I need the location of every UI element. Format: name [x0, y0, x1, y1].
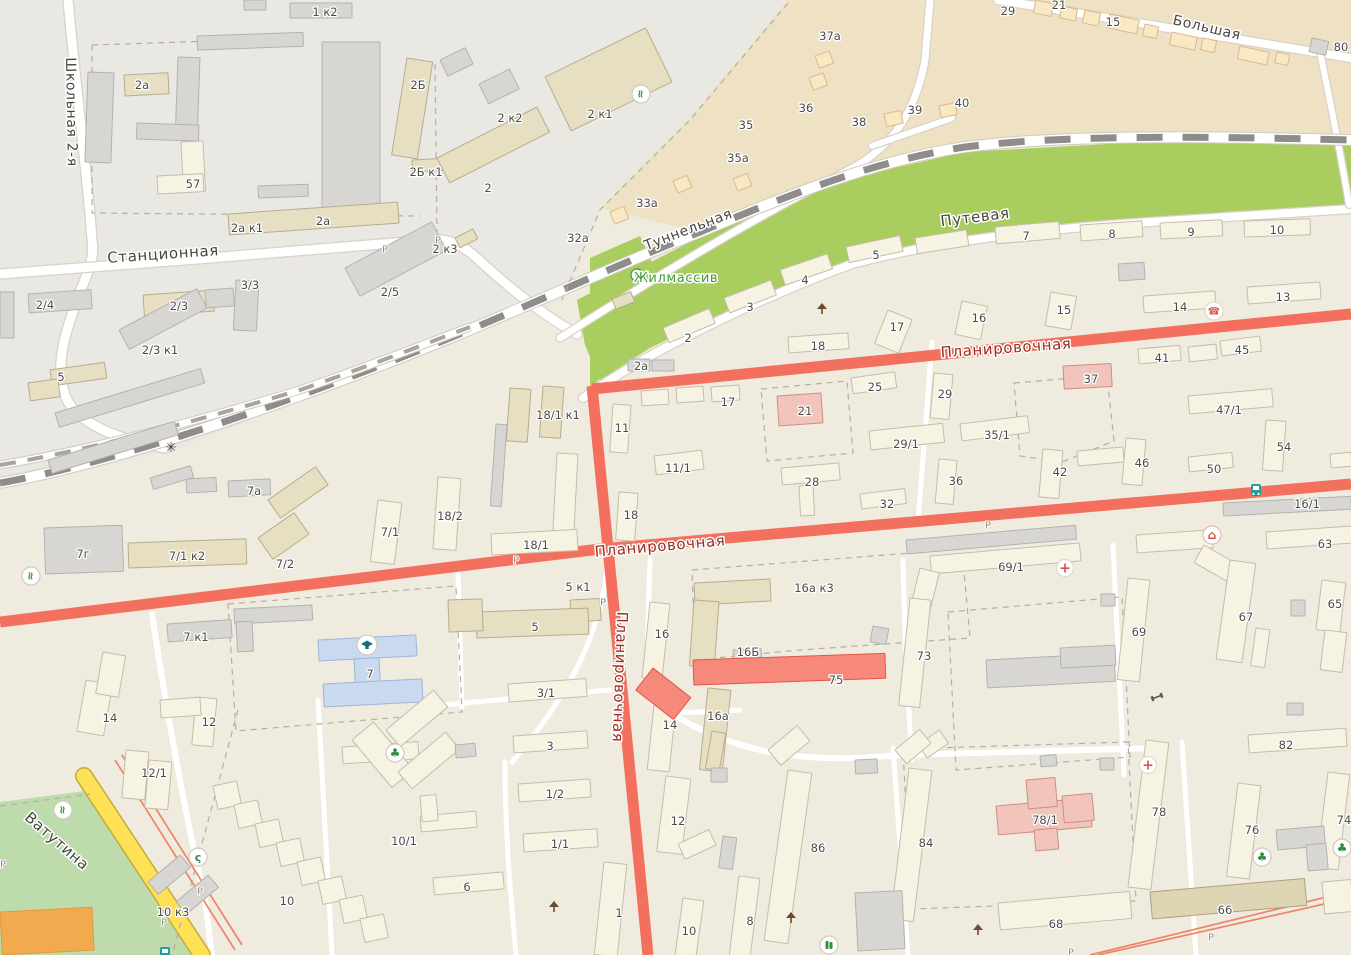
building[interactable]: [799, 485, 815, 516]
house-number-label: 2а: [135, 78, 149, 92]
house-number-label: 45: [1235, 343, 1250, 357]
house-number-label: 29: [1001, 4, 1016, 18]
house-number-label: 7/1 к2: [169, 549, 205, 563]
house-number-label: 1/2: [546, 787, 565, 801]
building[interactable]: [1330, 452, 1351, 468]
house-number-label: 73: [917, 649, 932, 663]
building[interactable]: [1060, 645, 1116, 668]
house-number-label: 2а: [316, 214, 330, 228]
parking-label: Р: [513, 556, 519, 567]
house-number-label: 12/1: [141, 766, 167, 780]
home-icon[interactable]: ⌂: [1203, 526, 1221, 544]
svg-text:+: +: [1142, 758, 1154, 774]
house-number-label: 2/3: [170, 299, 189, 313]
house-number-label: 35: [739, 118, 754, 132]
building[interactable]: [1287, 703, 1303, 715]
building[interactable]: [1034, 828, 1059, 851]
svg-text:+: +: [1059, 561, 1071, 577]
building[interactable]: [1118, 262, 1145, 281]
house-number-label: 17: [890, 320, 905, 334]
bus-icon[interactable]: [160, 947, 170, 955]
house-number-label: 3/3: [241, 278, 260, 292]
house-number-label: 69: [1132, 625, 1147, 639]
house-number-label: 29: [938, 387, 953, 401]
building[interactable]: [205, 288, 234, 308]
house-number-label: 7: [366, 667, 373, 681]
house-number-label: 10/1: [391, 834, 417, 848]
building[interactable]: [186, 477, 217, 493]
house-number-label: 7/1: [381, 525, 400, 539]
house-number-label: 37а: [819, 29, 841, 43]
house-number-label: 21: [798, 404, 813, 418]
house-number-label: 11/1: [665, 461, 691, 475]
railcross-icon[interactable]: ✳: [165, 440, 177, 456]
house-number-label: 67: [1239, 610, 1254, 624]
building[interactable]: [28, 379, 60, 401]
house-number-label: 75: [829, 673, 844, 687]
svg-text:ς: ς: [195, 851, 202, 864]
house-number-label: 18/2: [437, 509, 463, 523]
bus-icon[interactable]: [1251, 484, 1261, 496]
house-number-label: 9: [1187, 225, 1194, 239]
svg-text:♣: ♣: [1337, 841, 1348, 855]
house-number-label: 11: [615, 421, 630, 435]
house-number-label: 18/1: [523, 538, 549, 552]
house-number-label: 2: [484, 181, 491, 195]
building[interactable]: [1062, 793, 1094, 823]
house-number-label: 2а: [634, 359, 648, 373]
building[interactable]: [360, 914, 388, 942]
house-number-label: 7 к1: [183, 630, 208, 644]
house-number-label: 17: [721, 395, 736, 409]
house-number-label: 16а: [707, 709, 729, 723]
svg-text:♣: ♣: [1257, 850, 1268, 864]
house-number-label: 3: [746, 300, 753, 314]
house-number-label: 86: [811, 841, 826, 855]
building[interactable]: [1275, 52, 1290, 65]
parking-label: Р: [382, 245, 388, 256]
building[interactable]: [1143, 24, 1159, 39]
svg-text:≈: ≈: [24, 571, 37, 580]
parking-label: Р: [985, 521, 991, 532]
house-number-label: 5: [872, 248, 879, 262]
svg-text:≈: ≈: [56, 805, 69, 814]
house-number-label: 2 к2: [497, 111, 522, 125]
house-number-label: 36: [799, 101, 814, 115]
house-number-label: 66: [1218, 903, 1233, 917]
house-number-label: 3/1: [537, 686, 556, 700]
house-number-label: 10: [280, 894, 295, 908]
bottle-icon[interactable]: [820, 936, 838, 954]
building[interactable]: [855, 891, 905, 951]
house-number-label: 7а: [247, 484, 261, 498]
house-number-label: 39: [908, 103, 923, 117]
house-number-label: 84: [919, 836, 934, 850]
building[interactable]: [652, 360, 674, 371]
house-number-label: 2а к1: [231, 221, 263, 235]
house-number-label: 14: [663, 718, 678, 732]
house-number-label: 5: [531, 620, 538, 634]
house-number-label: 4: [801, 273, 808, 287]
house-number-label: 41: [1155, 351, 1170, 365]
house-number-label: 16: [972, 311, 987, 325]
runner-icon[interactable]: ς: [189, 848, 207, 866]
spring-icon[interactable]: ≈: [22, 567, 40, 585]
building[interactable]: [160, 697, 201, 718]
house-number-label: 35а: [727, 151, 749, 165]
parking-label: Р: [1208, 933, 1214, 944]
house-number-label: 68: [1049, 917, 1064, 931]
building[interactable]: [0, 292, 14, 338]
house-number-label: 74: [1337, 813, 1351, 827]
house-number-label: 2/4: [36, 298, 55, 312]
house-number-label: 15: [1106, 15, 1121, 29]
house-number-label: 38: [852, 115, 867, 129]
building[interactable]: [0, 907, 94, 955]
house-number-label: 3: [546, 739, 553, 753]
street-name-label: Школьная 2-я: [62, 57, 80, 167]
building[interactable]: [323, 679, 423, 707]
building[interactable]: [322, 42, 380, 210]
building[interactable]: [197, 32, 303, 50]
house-number-label: 13: [1276, 290, 1291, 304]
house-number-label: 16а к3: [794, 581, 834, 595]
house-number-label: 16: [655, 627, 670, 641]
building[interactable]: [1309, 38, 1329, 55]
svg-text:✳: ✳: [165, 440, 177, 456]
building[interactable]: [689, 600, 719, 668]
house-number-label: 8: [746, 914, 753, 928]
svg-text:☎: ☎: [1208, 307, 1220, 318]
house-number-label: 18: [624, 508, 639, 522]
building[interactable]: [244, 0, 266, 10]
house-number-label: 18: [811, 339, 826, 353]
house-number-label: 54: [1277, 440, 1292, 454]
house-number-label: 69/1: [998, 560, 1024, 574]
house-number-label: 18/1 к1: [536, 408, 580, 422]
house-number-label: 37: [1084, 372, 1099, 386]
house-number-label: 14: [1173, 300, 1188, 314]
svg-text:⌂: ⌂: [1208, 528, 1217, 542]
building[interactable]: [1188, 344, 1217, 362]
house-number-label: 8: [1108, 227, 1115, 241]
cross-icon[interactable]: +: [1140, 757, 1157, 774]
spring-icon[interactable]: ≈: [54, 801, 72, 819]
house-number-label: 40: [955, 96, 970, 110]
svg-text:♣: ♣: [390, 746, 401, 760]
house-number-label: 6: [463, 880, 470, 894]
tree-icon[interactable]: ♣: [1333, 839, 1351, 857]
house-number-label: 50: [1207, 462, 1222, 476]
building[interactable]: [1040, 755, 1057, 767]
svg-text:≈: ≈: [634, 89, 647, 98]
building[interactable]: [258, 184, 308, 198]
house-number-label: 35/1: [984, 428, 1010, 442]
building[interactable]: [884, 110, 903, 126]
building[interactable]: [1320, 630, 1347, 672]
house-number-label: 47/1: [1216, 403, 1242, 417]
house-number-label: 32а: [567, 231, 589, 245]
building[interactable]: [711, 768, 727, 782]
house-number-label: 25: [868, 380, 883, 394]
building[interactable]: [1291, 600, 1305, 616]
building[interactable]: [1100, 758, 1114, 770]
parking-label: Р: [161, 918, 167, 929]
building[interactable]: [1322, 879, 1351, 913]
house-number-label: 80: [1334, 40, 1349, 54]
tree-icon[interactable]: ♣: [1253, 848, 1271, 866]
house-number-label: 78: [1152, 805, 1167, 819]
house-number-label: 10: [682, 924, 697, 938]
gradcap-icon[interactable]: [357, 635, 377, 655]
parking-label: Р: [197, 887, 203, 898]
house-number-label: 36: [949, 474, 964, 488]
tree-icon[interactable]: ♣: [386, 744, 404, 762]
building[interactable]: [1101, 594, 1115, 606]
house-number-label: 63: [1318, 537, 1333, 551]
house-number-label: 32: [880, 497, 895, 511]
house-number-label: 2/3 к1: [142, 343, 178, 357]
house-number-label: 5 к1: [565, 580, 590, 594]
building[interactable]: [420, 795, 438, 822]
house-number-label: 1/1: [551, 837, 570, 851]
house-number-label: 5: [57, 370, 64, 384]
parking-label: Р: [435, 236, 441, 247]
building[interactable]: [676, 386, 704, 403]
house-number-label: 33а: [636, 196, 658, 210]
house-number-label: 12: [671, 814, 686, 828]
house-number-label: 7/2: [276, 557, 295, 571]
building[interactable]: [1082, 10, 1100, 26]
parking-label: Р: [0, 860, 6, 871]
house-number-label: 2: [684, 331, 691, 345]
house-number-label: 2 к1: [587, 107, 612, 121]
house-number-label: 65: [1328, 597, 1343, 611]
building[interactable]: [855, 759, 878, 774]
building[interactable]: [1026, 777, 1057, 808]
building[interactable]: [1306, 843, 1328, 871]
building[interactable]: [448, 599, 483, 632]
house-number-label: 15: [1057, 303, 1072, 317]
house-number-label: 1: [615, 906, 622, 920]
building[interactable]: [455, 743, 476, 758]
building[interactable]: [506, 388, 531, 442]
house-number-label: 2Б к1: [409, 165, 442, 179]
house-number-label: 16Б: [737, 645, 760, 659]
map-canvas[interactable]: ≈≈≈♣♣♣ς++☎⌂✳1 к22а2Б2Б к1572а к12а2 к22 …: [0, 0, 1351, 955]
house-number-label: 10: [1270, 223, 1285, 237]
spring-icon[interactable]: ≈: [632, 85, 650, 103]
house-number-label: 7: [1022, 229, 1029, 243]
house-number-label: 7г: [76, 547, 89, 561]
building[interactable]: [136, 123, 199, 141]
house-number-label: 2/5: [381, 285, 400, 299]
parking-label: Р: [1068, 948, 1074, 955]
house-number-label: 78/1: [1032, 813, 1058, 827]
parking-label: Р: [600, 598, 606, 609]
house-number-label: 42: [1053, 465, 1068, 479]
map-viewport[interactable]: ≈≈≈♣♣♣ς++☎⌂✳1 к22а2Б2Б к1572а к12а2 к22 …: [0, 0, 1351, 955]
house-number-label: 76: [1245, 823, 1260, 837]
house-number-label: 14: [103, 711, 118, 725]
building[interactable]: [236, 621, 254, 652]
building[interactable]: [1201, 38, 1217, 53]
house-number-label: 28: [805, 475, 820, 489]
house-number-label: 21: [1052, 0, 1067, 12]
house-number-label: 29/1: [893, 437, 919, 451]
building[interactable]: [85, 72, 114, 163]
street-name-label: Жилмассив: [634, 271, 718, 286]
house-number-label: 16/1: [1294, 497, 1320, 511]
building[interactable]: [641, 389, 669, 406]
house-number-label: 2Б: [410, 78, 425, 92]
house-number-label: 46: [1135, 456, 1150, 470]
house-number-label: 1 к2: [312, 5, 337, 19]
house-number-label: 82: [1279, 738, 1294, 752]
house-number-label: 57: [186, 177, 201, 191]
cross-icon[interactable]: +: [1057, 560, 1074, 577]
house-number-label: 12: [202, 715, 217, 729]
phone-icon[interactable]: ☎: [1205, 302, 1223, 320]
building[interactable]: [870, 626, 889, 645]
building[interactable]: [552, 453, 577, 540]
